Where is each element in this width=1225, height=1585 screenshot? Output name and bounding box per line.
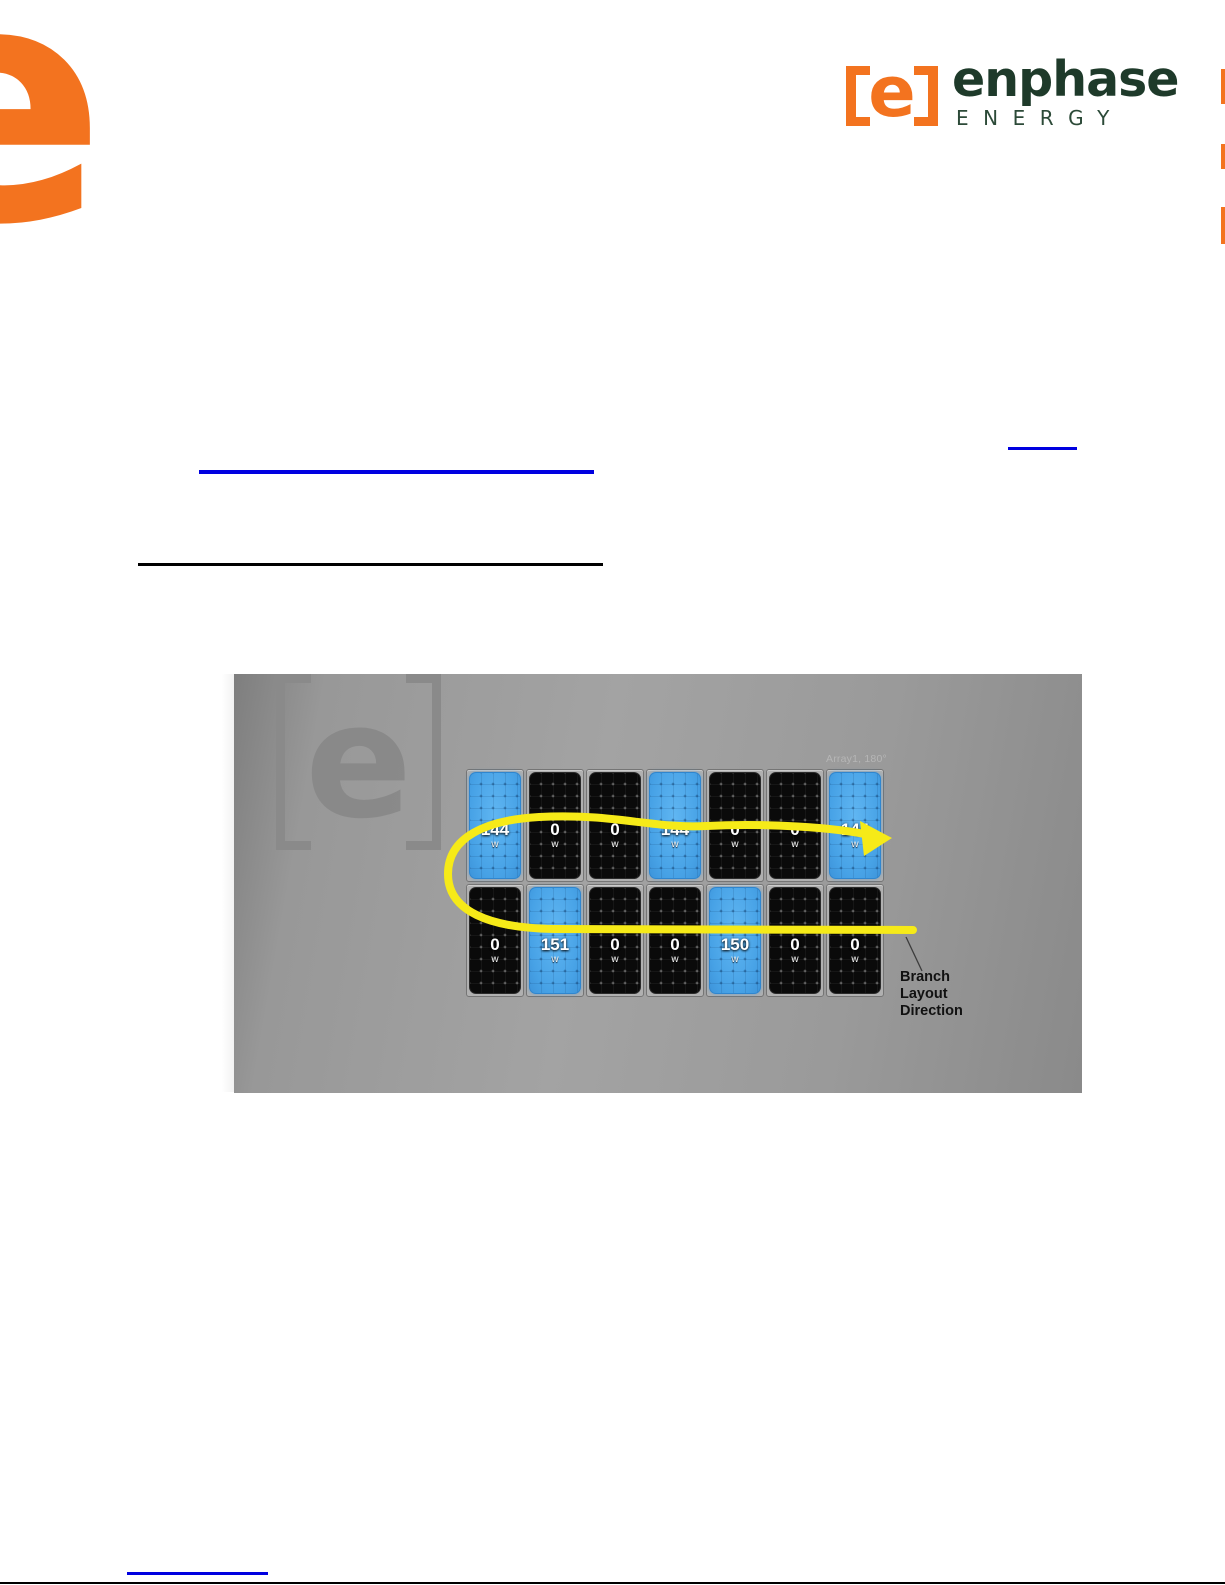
panel-power-value: 0 <box>790 936 799 954</box>
footer-hyperlink-underline[interactable] <box>127 1572 268 1575</box>
panel-idle: 0w <box>589 772 641 879</box>
panel-power-unit: w <box>611 954 618 965</box>
solar-panel-module[interactable]: 0w <box>826 884 884 997</box>
panel-idle: 0w <box>589 887 641 994</box>
footer-rule <box>0 1582 1225 1584</box>
enphase-logo: e enphase ENERGY <box>846 60 1179 136</box>
panel-power-value: 0 <box>610 936 619 954</box>
solar-panel-module[interactable]: 144w <box>466 769 524 882</box>
orange-edge-tab-icon <box>1221 207 1225 244</box>
panel-power-unit: w <box>611 839 618 850</box>
orange-edge-tab-icon <box>1221 69 1225 104</box>
panel-grid: 144w0w0w144w0w0w144w 0w151w0w0w150w0w0w <box>466 769 884 997</box>
panel-idle: 0w <box>529 772 581 879</box>
panel-power-unit: w <box>851 839 858 850</box>
solar-panel-module[interactable]: 0w <box>646 884 704 997</box>
solar-panel-module[interactable]: 0w <box>766 769 824 882</box>
panel-power-value: 0 <box>850 936 859 954</box>
hyperlink-underline[interactable] <box>1008 447 1077 450</box>
enphase-watermark-icon: e <box>276 674 441 850</box>
array-canvas: e Array1, 180° 144w0w0w144w0w0w144w 0w15… <box>234 674 1082 1093</box>
solar-panel-module[interactable]: 150w <box>706 884 764 997</box>
watermark-letter: e <box>305 674 412 850</box>
array-label: Array1, 180° <box>826 753 887 765</box>
panel-power-value: 0 <box>790 821 799 839</box>
panel-power-unit: w <box>731 954 738 965</box>
panel-power-value: 144 <box>841 821 869 839</box>
panel-row: 144w0w0w144w0w0w144w <box>466 769 884 882</box>
panel-power-value: 150 <box>721 936 749 954</box>
screenshot-left-margin <box>222 674 234 1092</box>
panel-producing: 144w <box>469 772 521 879</box>
panel-power-value: 144 <box>481 821 509 839</box>
panel-power-value: 0 <box>670 936 679 954</box>
enphase-bracket-e-icon: e <box>846 60 938 136</box>
panel-power-unit: w <box>671 954 678 965</box>
solar-panel-module[interactable]: 0w <box>586 769 644 882</box>
panel-power-value: 151 <box>541 936 569 954</box>
brand-name: enphase <box>952 56 1179 104</box>
panel-row: 0w151w0w0w150w0w0w <box>466 884 884 997</box>
panel-idle: 0w <box>829 887 881 994</box>
panel-producing: 151w <box>529 887 581 994</box>
solar-panel-module[interactable]: 0w <box>526 769 584 882</box>
document-page: e e enphase ENERGY e Array1, 180° <box>0 0 1225 1585</box>
branch-line-2: Layout <box>900 986 963 1003</box>
panel-power-unit: w <box>671 839 678 850</box>
panel-power-unit: w <box>791 839 798 850</box>
orange-edge-tab-icon <box>1221 144 1225 169</box>
panel-power-value: 0 <box>490 936 499 954</box>
solar-panel-module[interactable]: 0w <box>586 884 644 997</box>
solar-panel-module[interactable]: 0w <box>766 884 824 997</box>
solar-panel-module[interactable]: 151w <box>526 884 584 997</box>
panel-idle: 0w <box>709 772 761 879</box>
panel-power-value: 0 <box>730 821 739 839</box>
branch-line-3: Direction <box>900 1003 963 1020</box>
enphase-corner-mark-icon: e <box>0 28 108 258</box>
panel-producing: 150w <box>709 887 761 994</box>
heading-underline <box>138 563 603 566</box>
panel-idle: 0w <box>769 772 821 879</box>
panel-power-unit: w <box>491 839 498 850</box>
panel-producing: 144w <box>829 772 881 879</box>
solar-panel-module[interactable]: 144w <box>826 769 884 882</box>
panel-power-value: 0 <box>610 821 619 839</box>
panel-power-value: 0 <box>550 821 559 839</box>
panel-power-value: 144 <box>661 821 689 839</box>
panel-power-unit: w <box>491 954 498 965</box>
panel-power-unit: w <box>551 954 558 965</box>
panel-producing: 144w <box>649 772 701 879</box>
branch-line-1: Branch <box>900 969 963 986</box>
bracket-right-icon <box>914 66 938 126</box>
solar-panel-module[interactable]: 144w <box>646 769 704 882</box>
brand-wordmark: enphase ENERGY <box>952 60 1179 130</box>
hyperlink-underline[interactable] <box>199 470 594 474</box>
solar-panel-module[interactable]: 0w <box>706 769 764 882</box>
panel-idle: 0w <box>649 887 701 994</box>
branch-direction-label: Branch Layout Direction <box>900 969 963 1020</box>
corner-mark-letter: e <box>0 28 106 258</box>
panel-power-unit: w <box>851 954 858 965</box>
panel-power-unit: w <box>731 839 738 850</box>
panel-power-unit: w <box>551 839 558 850</box>
brand-tagline: ENERGY <box>952 106 1179 130</box>
panel-idle: 0w <box>769 887 821 994</box>
panel-idle: 0w <box>469 887 521 994</box>
callout-leader-line <box>906 937 922 971</box>
panel-power-unit: w <box>791 954 798 965</box>
screenshot-figure: e Array1, 180° 144w0w0w144w0w0w144w 0w15… <box>222 666 1082 1093</box>
solar-panel-module[interactable]: 0w <box>466 884 524 997</box>
